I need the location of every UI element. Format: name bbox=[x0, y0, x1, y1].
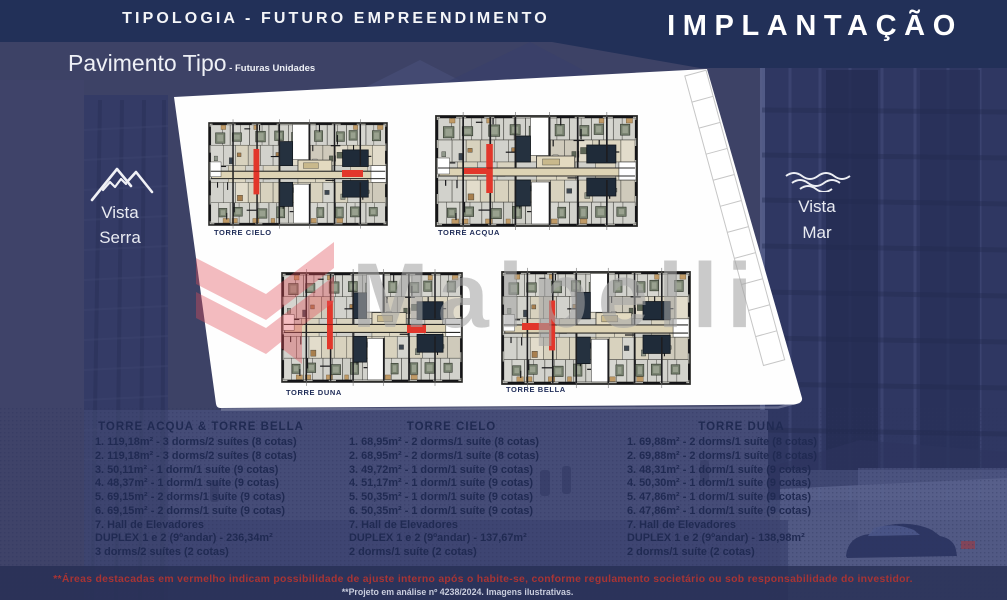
svg-text:Malpelli: Malpelli bbox=[352, 245, 761, 347]
